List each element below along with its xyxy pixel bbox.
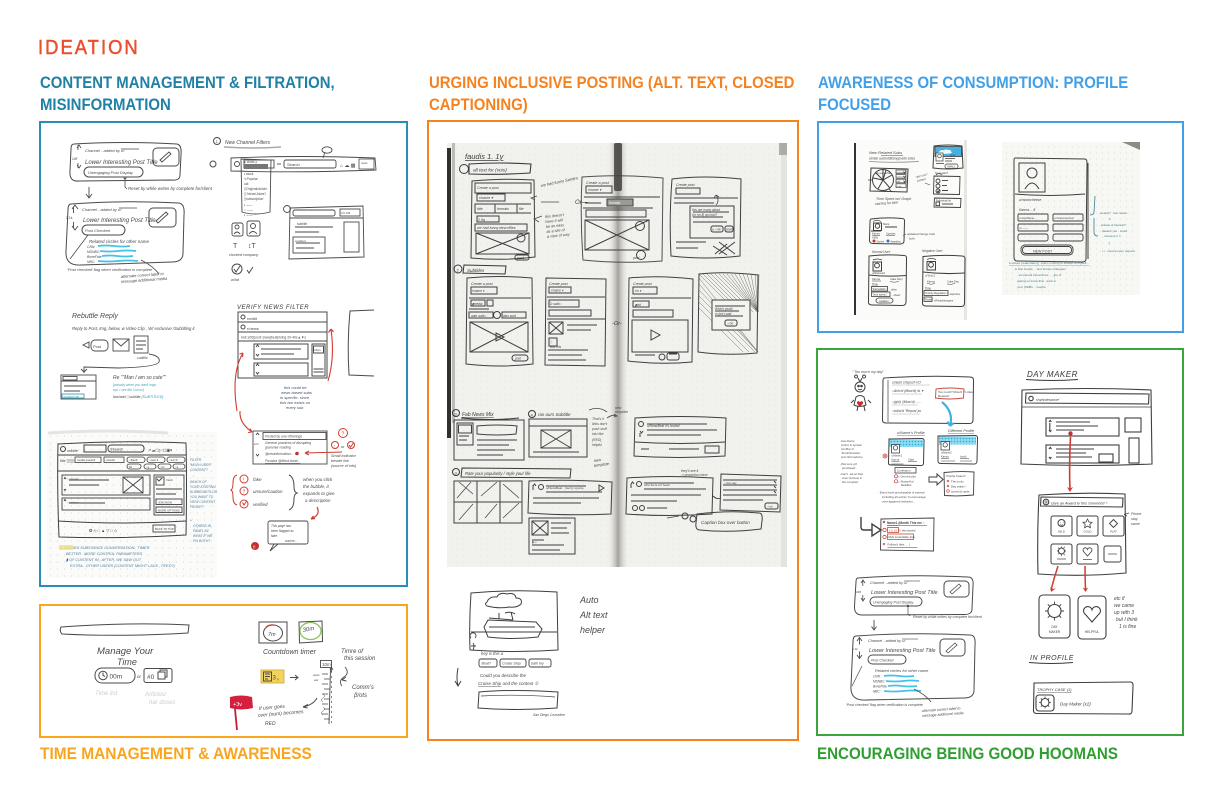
svg-text:This page has: This page has bbox=[271, 524, 291, 528]
svg-text:auto subt□: auto subt□ bbox=[471, 314, 486, 318]
svg-text:Caption box over button: Caption box over button bbox=[701, 520, 750, 525]
svg-text:w/photos: w/photos bbox=[950, 292, 961, 296]
svg-text:○ u/post: ○ u/post bbox=[67, 477, 78, 481]
svg-text:Cake Day!: Cake Day! bbox=[890, 277, 903, 281]
svg-text:r/name ▾: r/name ▾ bbox=[588, 188, 602, 192]
svg-text:10m: 10m bbox=[322, 662, 331, 667]
svg-text:-Or-: -Or- bbox=[612, 321, 622, 327]
svg-text:✎Popular: ✎Popular bbox=[244, 177, 259, 181]
svg-text:all text for (vois): all text for (vois) bbox=[473, 168, 507, 174]
svg-text:Comm’s: Comm’s bbox=[352, 685, 374, 691]
svg-text:New Channel Filters: New Channel Filters bbox=[225, 140, 271, 146]
svg-text:Follow’d (this … ): Follow’d (this … ) bbox=[888, 543, 910, 547]
svg-text:⚲Search: ⚲Search bbox=[110, 448, 123, 452]
svg-text:getting to know that . wor: getting to know that . work in bbox=[1017, 279, 1056, 283]
svg-text:✪ ◇ □ ▲ ▽ □ ◇: ✪ ◇ □ ▲ ▽ □ ◇ bbox=[89, 528, 118, 533]
svg-text:smash crispsch I/O: smash crispsch I/O bbox=[892, 381, 921, 385]
svg-text:HELPFUL: HELPFUL bbox=[1085, 630, 1100, 634]
svg-text:BoneFide:: BoneFide: bbox=[87, 255, 103, 259]
svg-text:Alt text: Alt text bbox=[579, 610, 608, 620]
svg-text:!: ! bbox=[334, 444, 335, 449]
svg-text:“ Too much my day”: “ Too much my day” bbox=[852, 370, 884, 374]
svg-text:▮media: ▮media bbox=[472, 302, 483, 306]
svg-text:u/Name’s Profile: u/Name’s Profile bbox=[897, 431, 925, 435]
svg-text:into like: into like bbox=[592, 432, 604, 436]
svg-text:Subreddits□: Subreddits□ bbox=[873, 287, 887, 291]
svg-text:Time spent□: Time spent□ bbox=[873, 293, 888, 297]
svg-text:○zz: ○zz bbox=[160, 465, 165, 469]
svg-text:or: or bbox=[341, 444, 345, 449]
svg-text:r/wholesome’: r/wholesome’ bbox=[1036, 397, 1060, 402]
svg-text:helper: helper bbox=[580, 625, 606, 635]
svg-text:○ ——: ○ —— bbox=[244, 208, 254, 212]
svg-text:Channel - added by u/: Channel - added by u/ bbox=[870, 581, 908, 585]
svg-text:r/Preachbangers: r/Preachbangers bbox=[934, 299, 954, 303]
svg-text:(only): (only) bbox=[960, 455, 967, 459]
svg-text:SUBREDDITS OR: SUBREDDITS OR bbox=[190, 490, 218, 494]
svg-text:CC.M▾: CC.M▾ bbox=[341, 211, 351, 215]
svg-text:Countdown timer: Countdown timer bbox=[263, 649, 317, 656]
svg-text:▒subscription’: ▒subscription’ bbox=[244, 197, 264, 201]
svg-text:BETTER . MORE CONTROL PARAMETE: BETTER . MORE CONTROL PARAMETERS bbox=[66, 552, 142, 556]
svg-text:Different Profile: Different Profile bbox=[948, 429, 974, 433]
svg-text:NEW POST: NEW POST bbox=[1033, 250, 1053, 254]
svg-text:2.1k: 2.1k bbox=[852, 647, 858, 651]
svg-text:beside link: beside link bbox=[331, 459, 350, 463]
svg-text:GOLD: GOLD bbox=[1084, 530, 1092, 534]
svg-text:MORE OPTIONS: MORE OPTIONS bbox=[158, 509, 180, 513]
svg-text:Rick smashable k/vs: Rick smashable k/vs bbox=[889, 535, 916, 539]
svg-text:↣ proportion base: ↣ proportion base bbox=[681, 473, 708, 477]
svg-text:00m: 00m bbox=[110, 674, 123, 681]
svg-text:Reset by while writes by compl: Reset by while writes by complete for/cl… bbox=[128, 186, 213, 191]
svg-text:@misinformation....☆: @misinformation....☆ bbox=[265, 452, 298, 456]
svg-text:RED: RED bbox=[265, 721, 276, 727]
svg-text:u/Name2: u/Name2 bbox=[941, 451, 952, 455]
svg-text:○ u/user: ○ u/user bbox=[67, 501, 78, 505]
svg-text:San Diego Cruiseline: San Diego Cruiseline bbox=[533, 713, 565, 717]
svg-text:memes: memes bbox=[897, 177, 905, 179]
svg-text:Fab News Mix: Fab News Mix bbox=[462, 412, 494, 418]
svg-text:IN PROFILE: IN PROFILE bbox=[1030, 655, 1074, 662]
svg-text:btw/add ░subtitle [SUBTITLED]: btw/add ░subtitle [SUBTITLED] bbox=[113, 395, 164, 399]
svg-text:#0: #0 bbox=[147, 674, 155, 681]
svg-text:CONTENT?: CONTENT? bbox=[190, 468, 208, 472]
svg-text:every sub: every sub bbox=[286, 405, 304, 410]
svg-text:Day Maker (x2): Day Maker (x2) bbox=[1060, 702, 1091, 707]
svg-text:MILD: MILD bbox=[1058, 530, 1065, 534]
svg-text:Awarding: Awarding bbox=[891, 241, 902, 244]
svg-text:‘MUCH USER: ‘MUCH USER bbox=[190, 463, 211, 467]
svg-text:r/365: r/365 bbox=[872, 236, 878, 240]
svg-text:Reply to Post, Img, below, w: Reply to Post, Img, below, w Video Clip … bbox=[72, 326, 195, 331]
svg-text:r/name ▾: r/name ▾ bbox=[479, 196, 494, 200]
svg-text:OTHERS IN: OTHERS IN bbox=[193, 524, 212, 528]
svg-text:post: post bbox=[725, 228, 732, 232]
svg-text:Possina @Most Anne...: Possina @Most Anne... bbox=[265, 459, 300, 463]
svg-text:7m: 7m bbox=[268, 632, 276, 638]
svg-text:+3v: +3v bbox=[233, 702, 242, 708]
svg-text:↗☁▢|○▢▣▾: ↗☁▢|○▢▣▾ bbox=[148, 448, 172, 453]
svg-text:Phone: Phone bbox=[1131, 512, 1141, 516]
svg-text:media□|news▾: media□|news▾ bbox=[77, 458, 96, 462]
svg-text:source...: source... bbox=[285, 539, 297, 543]
svg-text:this are many about: this are many about bbox=[692, 208, 720, 212]
svg-text:Trophy Case’d: Trophy Case’d bbox=[946, 474, 966, 478]
svg-text:(can find nations): (can find nations) bbox=[841, 455, 863, 459]
svg-text:we had funny descr/files: we had funny descr/files bbox=[477, 226, 516, 230]
svg-text:. is that simple …and shows: . is that simple …and shows strategies bbox=[1013, 267, 1066, 271]
svg-text:NBC:: NBC: bbox=[873, 690, 881, 694]
svg-text:‘Post checked’ flag when verif: ‘Post checked’ flag when verification is… bbox=[67, 267, 153, 272]
svg-text:▪all: ▪all bbox=[244, 182, 249, 186]
svg-text:reddit▾: reddit▾ bbox=[67, 449, 78, 453]
svg-text:Post Checked: Post Checked bbox=[871, 659, 894, 663]
svg-text:u/ ——: u/ —— bbox=[1020, 226, 1029, 230]
svg-text:248: 248 bbox=[856, 590, 861, 594]
svg-text:in (pic) said: in (pic) said bbox=[715, 312, 732, 316]
svg-text:v: v bbox=[277, 677, 279, 682]
svg-text:Create post: Create post bbox=[676, 183, 696, 187]
svg-text:bath toy: bath toy bbox=[531, 662, 544, 666]
svg-text:Channel - added by u/: Channel - added by u/ bbox=[868, 639, 906, 643]
svg-text:Unengaging Post Display: Unengaging Post Display bbox=[88, 170, 134, 175]
svg-text:DAY: DAY bbox=[1051, 625, 1058, 629]
svg-text:formats: formats bbox=[497, 207, 509, 211]
svg-text:1: 1 bbox=[216, 139, 219, 144]
svg-text:D subt□: D subt□ bbox=[550, 302, 561, 306]
svg-text:MSNBC:: MSNBC: bbox=[873, 680, 886, 684]
svg-text:CNN:: CNN: bbox=[87, 245, 95, 249]
svg-text:YOUR EXISTING: YOUR EXISTING bbox=[190, 485, 216, 489]
svg-text:○tv&w’d ‘Repost )w: ○tv&w’d ‘Repost )w bbox=[892, 409, 922, 413]
svg-text:Create a post: Create a post bbox=[477, 186, 500, 190]
svg-text:formats: formats bbox=[609, 201, 621, 205]
svg-text:Karma: Karma bbox=[927, 280, 935, 284]
svg-text:□news▾: □news▾ bbox=[105, 458, 115, 462]
svg-text:expands to give: expands to give bbox=[303, 491, 335, 496]
svg-text:Boat?: Boat? bbox=[482, 662, 491, 666]
svg-text:Name1 (Month This me ○: Name1 (Month This me ○ bbox=[887, 521, 925, 525]
svg-text:□ One the plot: □ One the plot bbox=[898, 475, 916, 479]
svg-text:Cruise Ship and the context: Cruise Ship and the context ① bbox=[478, 681, 540, 686]
svg-text:- ⊶ . usuara open request: - ⊶ . usuara open request bbox=[1100, 249, 1135, 253]
svg-text:Time: Time bbox=[925, 286, 931, 290]
svg-text:hey is this a: hey is this a bbox=[481, 651, 504, 656]
svg-text:2.5g: 2.5g bbox=[477, 218, 485, 222]
svg-text:Rate your popularity / style: Rate your popularity / style your life bbox=[465, 471, 531, 476]
svg-text:a description: a description bbox=[305, 498, 331, 503]
svg-text:PANEL IN/: PANEL IN/ bbox=[193, 529, 210, 533]
svg-text:Related circles for other name: Related circles for other name bbox=[89, 239, 150, 244]
svg-text:BACK TO TOP: BACK TO TOP bbox=[155, 527, 174, 531]
svg-text:when you click: when you click bbox=[303, 477, 333, 482]
svg-text:Articles/: Articles/ bbox=[144, 692, 168, 698]
svg-text:a ✓ok: a ✓ok bbox=[712, 228, 721, 232]
svg-text:links don’t: links don’t bbox=[592, 422, 608, 426]
svg-text:Channel - added by u/: Channel - added by u/ bbox=[82, 207, 122, 212]
svg-text:the bubble, it: the bubble, it bbox=[303, 484, 330, 489]
svg-text:⌂ ☁ ▩: ⌂ ☁ ▩ bbox=[340, 163, 356, 169]
svg-text:u/Unconcerned: u/Unconcerned bbox=[1055, 216, 1074, 220]
svg-text:Which youth: Which youth bbox=[715, 307, 733, 311]
svg-text:Cake: Cake bbox=[908, 458, 915, 462]
svg-text:enabled: enabled bbox=[295, 239, 306, 243]
svg-text:(RED): (RED) bbox=[592, 438, 601, 442]
svg-text:u/Toxic1: u/Toxic1 bbox=[925, 274, 935, 278]
svg-text:youtube link: youtube link bbox=[63, 395, 80, 399]
svg-text:Rude□: Rude□ bbox=[925, 298, 933, 302]
svg-text:○new ▾: ○new ▾ bbox=[149, 458, 159, 462]
svg-text:?: ? bbox=[342, 432, 345, 438]
svg-text:+1| 15.7k: +1| 15.7k bbox=[889, 529, 902, 533]
svg-text:post: post bbox=[514, 357, 521, 361]
svg-text:Negative User’: Negative User’ bbox=[922, 249, 943, 253]
svg-text:(cross’d) cards: (cross’d) cards bbox=[951, 490, 970, 494]
svg-text:your (SMBɹ …maybe: your (SMBɹ …maybe bbox=[1017, 285, 1046, 289]
svg-text:title ▒▒▒: title ▒▒▒ bbox=[60, 459, 75, 463]
svg-text:General practices of disruptin: General practices of disrupting bbox=[265, 441, 311, 445]
svg-text:Mars: Mars bbox=[883, 222, 890, 226]
svg-text:✓ok: ✓ok bbox=[727, 322, 733, 326]
svg-text:up with 3: up with 3 bbox=[1114, 610, 1134, 616]
svg-text:subtitle: subtitle bbox=[297, 222, 307, 226]
svg-text:w/bd: w/bd bbox=[231, 278, 240, 282]
svg-text:▪ ——: ▪ —— bbox=[244, 213, 253, 217]
svg-text:lets see awhile: lets see awhile bbox=[875, 172, 891, 175]
svg-text:JOIN NOW: JOIN NOW bbox=[158, 501, 172, 505]
svg-text:Cruise Ship: Cruise Ship bbox=[502, 662, 521, 666]
svg-text:r/compl: r/compl bbox=[897, 171, 905, 174]
svg-text:clocked company: clocked company bbox=[229, 253, 259, 257]
svg-text:r/pics: r/pics bbox=[950, 154, 957, 157]
svg-text:VIEW CONTENT: VIEW CONTENT bbox=[190, 500, 216, 504]
svg-text:u/NewsBeat it’s hosted: u/NewsBeat it’s hosted bbox=[647, 424, 680, 428]
svg-text:FIX BOTH?: FIX BOTH? bbox=[193, 539, 210, 543]
svg-text:file: file bbox=[519, 207, 524, 211]
svg-text:unsure/caution: unsure/caution bbox=[253, 489, 283, 494]
svg-text:over apparent behavior…: over apparent behavior… bbox=[882, 500, 916, 504]
svg-text:VERIFY NEWS FILTER: VERIFY NEWS FILTER bbox=[237, 305, 309, 311]
svg-text:u/AnyName…: u/AnyName… bbox=[1020, 216, 1038, 220]
svg-text:Karma… 8: Karma… 8 bbox=[1019, 208, 1035, 212]
svg-text:updates/change both: updates/change both bbox=[907, 232, 935, 236]
svg-text:Reset by while writes by compl: Reset by while writes by complete for/cl… bbox=[913, 615, 983, 619]
svg-text:WHAT IF WE: WHAT IF WE bbox=[193, 534, 213, 538]
svg-text:↙: ↙ bbox=[190, 518, 193, 522]
svg-text:↕T: ↕T bbox=[248, 243, 257, 250]
svg-text:Stories: Stories bbox=[877, 241, 885, 244]
svg-text:or: or bbox=[137, 674, 142, 679]
svg-text:Following list: Following list bbox=[936, 198, 951, 202]
svg-text:ww: ww bbox=[314, 678, 319, 682]
svg-text:T: T bbox=[233, 243, 238, 250]
svg-text:ras ours Subtitle: ras ours Subtitle bbox=[538, 412, 571, 417]
svg-text:DAY MAKER: DAY MAKER bbox=[1027, 370, 1078, 379]
svg-text:□ this way: □ this way bbox=[724, 481, 737, 485]
svg-text:Unengaging Post Display: Unengaging Post Display bbox=[873, 601, 914, 605]
svg-text:FILTER: FILTER bbox=[190, 458, 202, 462]
svg-text:[actually when you want Imgs: [actually when you want Imgs bbox=[112, 383, 156, 387]
svg-text:r/all: r/all bbox=[897, 180, 901, 183]
svg-text:u/Stressed: u/Stressed bbox=[872, 271, 885, 275]
svg-text:○Alex’d (Mow’d) /b ✦: ○Alex’d (Mow’d) /b ✦ bbox=[892, 389, 925, 393]
svg-text:!!: !! bbox=[253, 545, 256, 550]
svg-text:u/Name1: u/Name1 bbox=[892, 454, 903, 458]
svg-text:Upvotes: Upvotes bbox=[886, 232, 896, 236]
svg-text:Time: Time bbox=[117, 657, 137, 667]
svg-text:Karma: Karma bbox=[941, 455, 949, 459]
svg-text:▮□□: ▮□□ bbox=[532, 540, 537, 544]
svg-text:including all extras’ to e: including all extras’ to encourage, bbox=[882, 495, 927, 499]
svg-text:also subt: also subt bbox=[503, 314, 516, 318]
svg-text:Re ““Man I am so cute””: Re ““Man I am so cute”” bbox=[113, 375, 166, 381]
svg-text:been flagged as: been flagged as bbox=[271, 529, 294, 533]
svg-text:r/name ▾: r/name ▾ bbox=[551, 289, 564, 293]
svg-text:. emotional hierarchies… ,: . emotional hierarchies… , ʃps of bbox=[1017, 273, 1061, 277]
svg-text:it solves (redundancy) -that: it solves (redundancy) -that’s nothing t… bbox=[1009, 261, 1089, 265]
svg-text:Btw this: Btw this bbox=[550, 345, 562, 349]
svg-text:Loh: Loh bbox=[254, 442, 259, 446]
svg-text:u/he there it’s head: u/he there it’s head bbox=[644, 483, 670, 487]
svg-text:FROM??: FROM?? bbox=[190, 505, 204, 509]
svg-text:248: 248 bbox=[71, 157, 78, 161]
svg-text:Confusion: Confusion bbox=[897, 469, 911, 473]
svg-text:Channel - added by u/: Channel - added by u/ bbox=[85, 148, 125, 153]
svg-text:!: ! bbox=[243, 478, 244, 484]
svg-text:(source of info): (source of info) bbox=[331, 464, 357, 468]
svg-text:2.1k: 2.1k bbox=[66, 216, 73, 220]
svg-text:✓ok: ✓ok bbox=[767, 505, 773, 509]
svg-text:fake.: fake. bbox=[271, 534, 278, 538]
svg-text:(cc on if) go now?: (cc on if) go now? bbox=[692, 213, 717, 217]
svg-text:Redditor: Redditor bbox=[901, 483, 912, 487]
svg-text:‘Post checked’ flag when verif: ‘Post checked’ flag when verification is… bbox=[846, 703, 923, 707]
svg-text:Post: Post bbox=[93, 344, 102, 349]
svg-text:- (awash you - could: - (awash you - could bbox=[1100, 229, 1127, 233]
svg-text:Time list: Time list bbox=[95, 691, 118, 697]
svg-text:Update□: Update□ bbox=[879, 299, 889, 303]
svg-text:news: news bbox=[361, 161, 368, 165]
svg-text:▮ OF CONTENT IN , AFTER, WE: ▮ OF CONTENT IN , AFTER, WE SAW OUT bbox=[66, 558, 142, 562]
svg-text:○filter▾: ○filter▾ bbox=[129, 458, 138, 462]
svg-text:○sort ▾: ○sort ▾ bbox=[169, 458, 178, 462]
svg-text:That’s it: That’s it bbox=[592, 417, 605, 421]
svg-text:purchased…: purchased… bbox=[841, 466, 858, 470]
svg-text:PLAT: PLAT bbox=[1110, 530, 1117, 534]
svg-text:…often: …often bbox=[889, 288, 898, 292]
svg-text:Lower Interesting Post Title: Lower Interesting Post Title bbox=[869, 648, 936, 654]
svg-text:verified: verified bbox=[253, 502, 268, 507]
svg-text:Manage Your: Manage Your bbox=[97, 646, 154, 657]
svg-text:this session: this session bbox=[344, 656, 376, 662]
svg-text:Create a post: Create a post bbox=[586, 181, 610, 185]
svg-text:r/news: r/news bbox=[247, 326, 259, 331]
svg-text:EXTRA . OTHER USERS (CONTENT M: EXTRA . OTHER USERS (CONTENT MIGHT LACK … bbox=[70, 564, 175, 568]
svg-text:subtitle: subtitle bbox=[137, 356, 148, 360]
svg-text:grammar reading: grammar reading bbox=[265, 446, 291, 450]
svg-text:helpful: helpful bbox=[592, 443, 602, 447]
svg-text:both: both bbox=[909, 237, 915, 241]
svg-text:Cake Day: Cake Day bbox=[947, 280, 959, 284]
svg-text:Reposts’: Reposts’ bbox=[938, 394, 950, 398]
svg-text:similar subreddits/opposite si: similar subreddits/opposite sides bbox=[869, 157, 915, 161]
svg-text:?: ? bbox=[243, 490, 246, 496]
svg-text:Auto: Auto bbox=[579, 595, 599, 605]
svg-text:-erases of interest?: -erases of interest? bbox=[1100, 223, 1126, 227]
svg-text:YOU WANT TO: YOU WANT TO bbox=[190, 495, 214, 499]
svg-text:template: template bbox=[615, 410, 628, 414]
svg-text:Normal User’: Normal User’ bbox=[872, 250, 891, 254]
svg-text:Karma: Karma bbox=[872, 277, 880, 281]
svg-text:Give an Award to this comment!: Give an Award to this comment! ^ bbox=[1051, 502, 1108, 506]
svg-text:Lower Interesting Post Title: Lower Interesting Post Title bbox=[83, 218, 156, 224]
svg-text:reddit: reddit bbox=[247, 316, 258, 321]
svg-text:Subtitles: Subtitles bbox=[467, 268, 485, 273]
svg-text:MAKER: MAKER bbox=[1049, 630, 1061, 634]
svg-text:30m: 30m bbox=[302, 626, 315, 634]
svg-text:filters: filters bbox=[315, 348, 322, 352]
svg-text:▾d: ▾d bbox=[129, 465, 132, 469]
svg-text:Create post: Create post bbox=[549, 282, 569, 286]
svg-text:Hot□(00)|sort□|new|best|rising: Hot□(00)|sort□|new|best|rising 20-40s▲▼s bbox=[241, 336, 306, 340]
svg-text:-weekly? - two /week -: -weekly? - two /week - bbox=[1099, 211, 1129, 215]
svg-text:har doses: har doses bbox=[149, 700, 175, 706]
svg-text:post: post bbox=[632, 256, 640, 260]
svg-text:Post Checked: Post Checked bbox=[85, 228, 111, 233]
svg-text:Toxicity Regulator□: Toxicity Regulator□ bbox=[925, 291, 947, 295]
svg-text:○(girl) ‘(Mow’d)……: ○(girl) ‘(Mow’d)…… bbox=[892, 400, 921, 404]
svg-text:r/name ▾: r/name ▾ bbox=[472, 289, 485, 293]
svg-text:this (week): this (week) bbox=[902, 529, 916, 533]
svg-text:faudis 1. 1y: faudis 1. 1y bbox=[465, 152, 505, 161]
svg-text:WHICH OF: WHICH OF bbox=[190, 480, 208, 484]
svg-text:stay: stay bbox=[1131, 517, 1138, 521]
svg-text:▪ ——: ▪ —— bbox=[244, 203, 253, 207]
svg-text:www: www bbox=[313, 673, 320, 677]
svg-text:Small indicator: Small indicator bbox=[331, 454, 357, 458]
svg-text:Search: Search bbox=[287, 162, 300, 167]
svg-text:Rebuttle Reply: Rebuttle Reply bbox=[72, 313, 118, 320]
svg-text:Lower Interesting Post Title: Lower Interesting Post Title bbox=[85, 160, 158, 166]
svg-text:▒Original/Article: ▒Original/Article bbox=[244, 187, 267, 191]
svg-text:Karma: Karma bbox=[892, 458, 900, 462]
svg-text:Related circles for other name: Related circles for other name bbox=[875, 668, 929, 673]
svg-text:but I think: but I think bbox=[1116, 617, 1138, 623]
svg-text:top: I see the Cursor]: top: I see the Cursor] bbox=[113, 388, 144, 392]
svg-text:Posted by u/so titherings: Posted by u/so titherings bbox=[265, 435, 302, 439]
svg-text:fake: fake bbox=[253, 477, 262, 482]
svg-text:New Related Subs: New Related Subs bbox=[869, 150, 902, 155]
svg-text:Create a post: Create a post bbox=[471, 282, 494, 286]
svg-text:SMALL: SMALL bbox=[947, 164, 956, 168]
svg-text:β/ots: β/ots bbox=[353, 693, 367, 699]
svg-text:MSNBC:: MSNBC: bbox=[87, 250, 100, 254]
svg-text:u/mooncheese: u/mooncheese bbox=[1019, 198, 1041, 202]
svg-text:▒ News/Jokes?: ▒ News/Jokes? bbox=[244, 192, 266, 196]
svg-text:moment in ?: moment in ? bbox=[1104, 234, 1121, 238]
svg-text:● chats ▾: ● chats ▾ bbox=[244, 160, 257, 164]
svg-text:Day maker♡: Day maker♡ bbox=[951, 485, 968, 489]
svg-text:r/sub: r/sub bbox=[897, 185, 903, 188]
svg-text:we came: we came bbox=[1114, 603, 1134, 609]
svg-text:etc if: etc if bbox=[1114, 596, 1125, 602]
svg-text:TROPHY CASE (1): TROPHY CASE (1) bbox=[1037, 687, 1072, 692]
svg-text:title: title bbox=[477, 207, 483, 211]
svg-text:Lower Interesting Post Title: Lower Interesting Post Title bbox=[871, 590, 938, 596]
svg-text:- Each have purchasable is: - Each have purchasable is earned bbox=[878, 491, 925, 495]
svg-text:1 is fine: 1 is fine bbox=[1119, 624, 1136, 630]
